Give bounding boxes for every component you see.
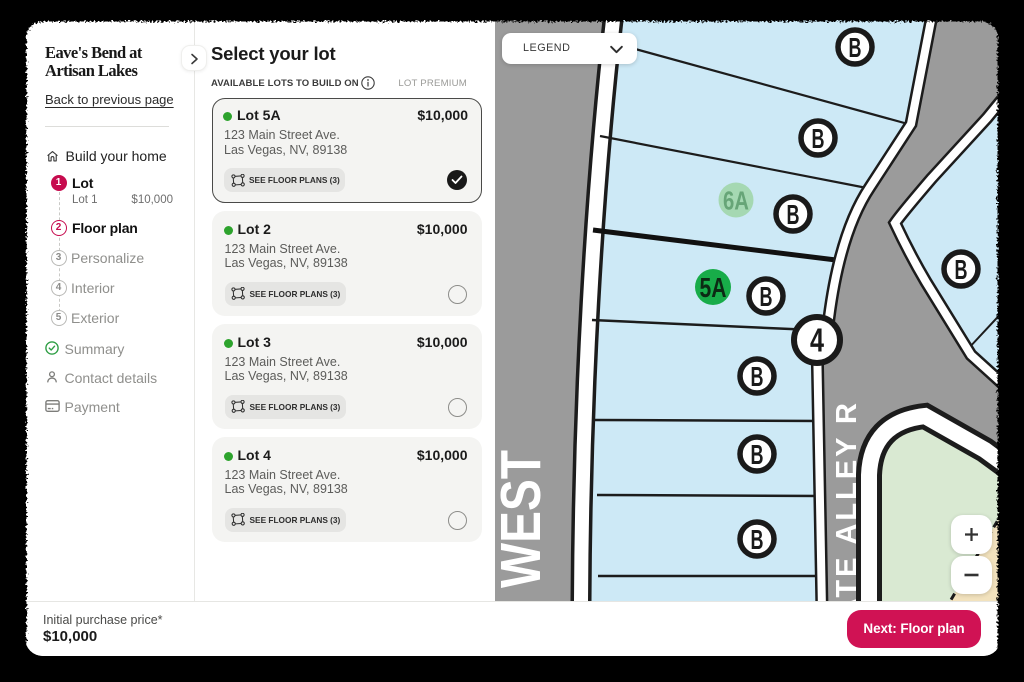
- svg-text:4: 4: [810, 322, 824, 359]
- svg-text:B: B: [751, 524, 764, 555]
- svg-text:B: B: [812, 123, 825, 154]
- svg-text:B: B: [849, 32, 862, 63]
- svg-text:WEST: WEST: [495, 450, 553, 588]
- svg-text:B: B: [787, 199, 800, 230]
- svg-text:B: B: [760, 281, 773, 312]
- svg-text:6A: 6A: [723, 186, 749, 216]
- svg-text:B: B: [751, 361, 764, 392]
- svg-text:5A: 5A: [700, 272, 727, 303]
- svg-text:B: B: [955, 254, 968, 285]
- svg-text:B: B: [751, 439, 764, 470]
- svg-text:VATE ALLEY R: VATE ALLEY R: [831, 400, 863, 601]
